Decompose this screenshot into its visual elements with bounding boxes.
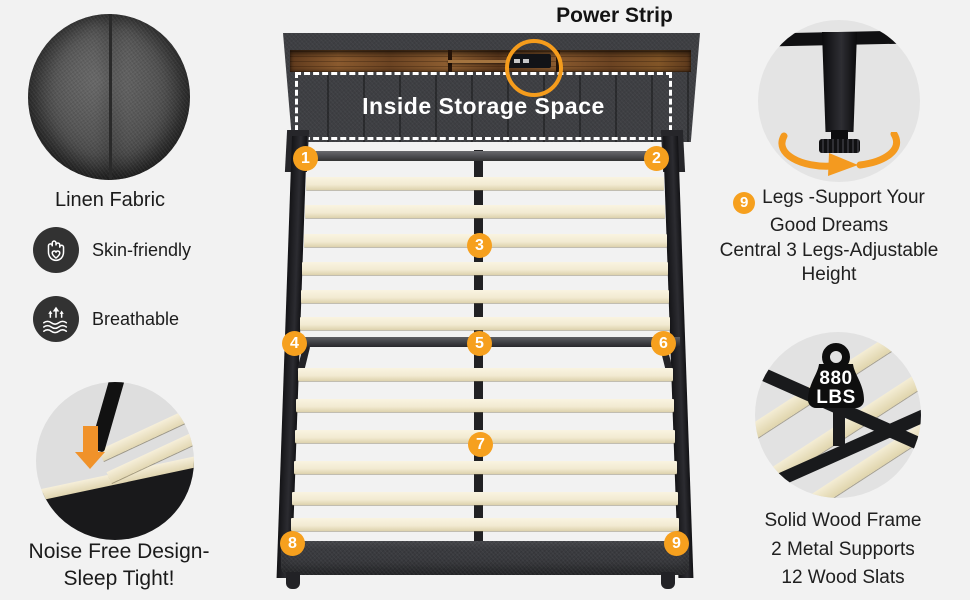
legs-line-4: Height	[688, 263, 970, 288]
weight-icon: 880 LBS	[802, 342, 870, 424]
metal-support-bar-top	[303, 151, 665, 161]
wood-slat	[292, 492, 678, 505]
legs-line-1-text: Legs -Support Your	[762, 187, 925, 208]
spec-line-3: 12 Wood Slats	[723, 564, 963, 593]
wood-slat	[291, 518, 679, 531]
marker-5: 5	[467, 331, 492, 356]
headboard: Inside Storage Space	[283, 33, 700, 142]
legs-line-3: Central 3 Legs-Adjustable	[688, 239, 970, 264]
wood-slat	[296, 399, 674, 412]
rotate-arrows-icon	[772, 132, 906, 176]
noise-free-line1: Noise Free Design-	[5, 538, 233, 565]
linen-fabric-label: Linen Fabric	[25, 189, 195, 212]
leg-photo-part	[822, 32, 857, 132]
fabric-seam	[109, 14, 112, 180]
noise-free-caption: Noise Free Design- Sleep Tight!	[5, 538, 233, 592]
marker-1: 1	[293, 146, 318, 171]
marker-2: 2	[644, 146, 669, 171]
wood-slat	[306, 177, 664, 190]
highlight-circle-icon	[505, 39, 563, 97]
noise-free-photo	[36, 382, 194, 540]
footboard-rail	[281, 541, 689, 575]
headboard-shelf	[290, 50, 691, 72]
bed-foot-right	[661, 572, 675, 589]
marker-4: 4	[282, 331, 307, 356]
spec-line-1: Solid Wood Frame	[723, 507, 963, 536]
storage-space-label: Inside Storage Space	[362, 93, 605, 120]
down-arrow-icon	[83, 426, 98, 452]
hand-heart-icon	[33, 227, 79, 273]
marker-8: 8	[280, 531, 305, 556]
bed-foot-left	[286, 572, 300, 589]
feature-skin-friendly: Skin-friendly	[33, 227, 191, 273]
wood-slat	[300, 317, 670, 330]
wood-slat	[302, 262, 668, 275]
feature-label: Skin-friendly	[92, 240, 191, 261]
storage-space-outline: Inside Storage Space	[295, 72, 672, 140]
linen-fabric-photo	[28, 14, 190, 180]
footboard-texture	[281, 541, 689, 575]
weight-capacity-photo: 880 LBS	[755, 332, 921, 498]
bed-frame-infographic: Linen Fabric Skin-friendly Breathable	[0, 0, 970, 600]
legs-line-1: 9Legs -Support Your	[688, 186, 970, 214]
power-strip-label: Power Strip	[532, 4, 697, 28]
legs-line-2: Good Dreams	[688, 214, 970, 239]
feature-label: Breathable	[92, 309, 179, 330]
frame-specs: Solid Wood Frame 2 Metal Supports 12 Woo…	[723, 507, 963, 593]
breathable-waves-icon	[33, 296, 79, 342]
wood-slat	[305, 205, 665, 218]
legs-description: 9Legs -Support Your Good Dreams Central …	[688, 186, 970, 288]
down-arrow-icon	[75, 452, 105, 469]
adjustable-leg-photo	[758, 20, 920, 182]
wood-slat	[298, 368, 673, 381]
spec-line-2: 2 Metal Supports	[723, 536, 963, 565]
shelf-middle-board	[448, 60, 512, 63]
noise-free-line2: Sleep Tight!	[5, 565, 233, 592]
marker-7: 7	[468, 432, 493, 457]
weight-unit: LBS	[802, 387, 870, 409]
wood-slat	[294, 461, 677, 474]
badge-9: 9	[733, 192, 755, 214]
marker-3: 3	[467, 233, 492, 258]
marker-6: 6	[651, 331, 676, 356]
marker-9: 9	[664, 531, 689, 556]
feature-breathable: Breathable	[33, 296, 179, 342]
wood-slat	[301, 290, 669, 303]
